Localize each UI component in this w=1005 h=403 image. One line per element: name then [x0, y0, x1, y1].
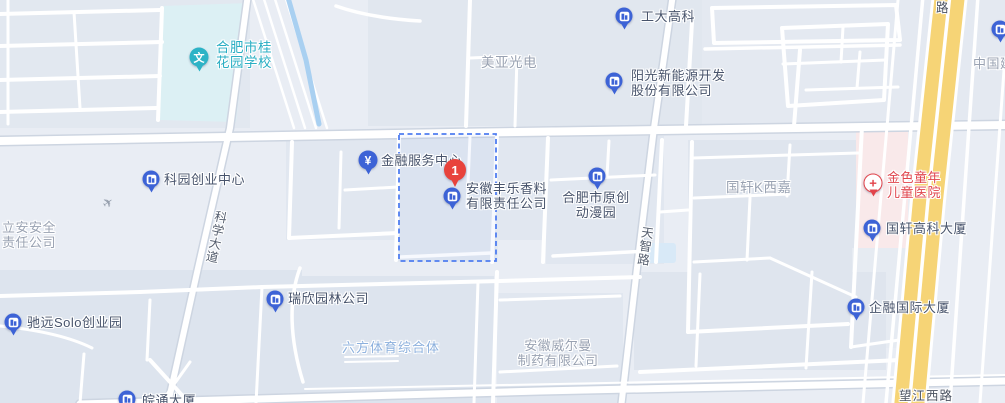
building-icon [267, 291, 284, 308]
poi-marker-qirong[interactable] [848, 299, 865, 316]
poi-label-guoxuan-tower[interactable]: 国轩高科大厦 [886, 221, 967, 236]
building-icon [992, 21, 1005, 38]
poi-marker-chiyuan[interactable] [5, 314, 22, 331]
poi-label-fengle-line2: 有限责任公司 [466, 196, 547, 211]
building-icon [606, 73, 623, 90]
area-label-liufang-sports: 六方体育综合体 [342, 340, 440, 355]
poi-marker-wantong[interactable] [119, 391, 136, 403]
road-label-partial-top: 路 [936, 0, 950, 16]
poi-label-chiyuan[interactable]: 驰远Solo创业园 [27, 315, 123, 330]
map-canvas[interactable]: ✈ 科学大道 天智路 望江西路 路 美亚光电 立安安全 责任公司 国轩K西嘉 六… [0, 0, 1005, 403]
poi-marker-hospital[interactable]: + [864, 174, 883, 193]
building-icon [5, 314, 22, 331]
selected-result-pin[interactable]: 1 [444, 159, 466, 181]
poi-marker-jinrong[interactable]: ¥ [359, 151, 378, 170]
building-icon [444, 188, 461, 205]
poi-label-yangguang[interactable]: 阳光新能源开发 股份有限公司 [631, 68, 726, 98]
poi-label-yuanchuang-line2: 动漫园 [562, 205, 630, 220]
poi-label-ruixin[interactable]: 瑞欣园林公司 [288, 291, 369, 306]
pin-number: 1 [444, 159, 466, 181]
road-label-wangjiang-xilu: 望江西路 [899, 385, 953, 403]
area-label-zhongguo: 中国建 [973, 56, 1005, 71]
poi-marker-yangguang[interactable] [606, 73, 623, 90]
poi-label-qirong[interactable]: 企融国际大厦 [869, 300, 950, 315]
area-label-guoxuan-k: 国轩K西嘉 [726, 180, 792, 195]
poi-label-school-line2: 花园学校 [216, 55, 272, 70]
poi-label-hospital-line1: 金色童年 [887, 170, 941, 185]
area-label-meiya: 美亚光电 [481, 55, 537, 70]
poi-label-keyuan[interactable]: 科园创业中心 [164, 172, 245, 187]
school-icon: 文 [190, 48, 209, 67]
poi-label-school-line1: 合肥市桂 [216, 40, 272, 55]
yen-icon: ¥ [359, 151, 378, 170]
area-label-lian-line2: 责任公司 [2, 235, 56, 250]
poi-label-yuanchuang-line1: 合肥市原创 [562, 190, 630, 205]
poi-marker-ruixin[interactable] [267, 291, 284, 308]
poi-marker-edge-partial[interactable] [992, 21, 1005, 38]
poi-marker-yuanchuang[interactable] [589, 168, 606, 185]
building-icon [848, 299, 865, 316]
poi-marker-fengle[interactable] [444, 188, 461, 205]
poi-label-gongda[interactable]: 工大高科 [641, 9, 695, 24]
building-icon [864, 220, 881, 237]
area-label-lian: 立安安全 责任公司 [2, 220, 56, 250]
area-label-weierman-line2: 制药有限公司 [517, 353, 598, 368]
building-icon [119, 391, 136, 403]
poi-label-school[interactable]: 合肥市桂 花园学校 [216, 40, 272, 70]
area-label-lian-line1: 立安安全 [2, 220, 56, 235]
building-icon [589, 168, 606, 185]
poi-marker-guoxuan-tower[interactable] [864, 220, 881, 237]
poi-label-yangguang-line1: 阳光新能源开发 [631, 68, 726, 83]
poi-marker-keyuan[interactable] [143, 171, 160, 188]
building-icon [616, 8, 633, 25]
cross-icon: + [864, 174, 883, 193]
poi-label-yangguang-line2: 股份有限公司 [631, 83, 726, 98]
poi-label-fengle[interactable]: 安徽丰乐香料 有限责任公司 [466, 181, 547, 211]
poi-marker-school[interactable]: 文 [190, 48, 209, 67]
poi-label-wantong[interactable]: 皖通大厦 [142, 393, 196, 403]
area-label-weierman-line1: 安徽威尔曼 [517, 338, 598, 353]
poi-label-hospital-line2: 儿童医院 [887, 185, 941, 200]
poi-label-yuanchuang[interactable]: 合肥市原创 动漫园 [562, 190, 630, 220]
poi-marker-gongda[interactable] [616, 8, 633, 25]
poi-label-fengle-line1: 安徽丰乐香料 [466, 181, 547, 196]
building-icon [143, 171, 160, 188]
area-label-weierman: 安徽威尔曼 制药有限公司 [517, 338, 598, 368]
poi-label-hospital[interactable]: 金色童年 儿童医院 [887, 170, 941, 200]
